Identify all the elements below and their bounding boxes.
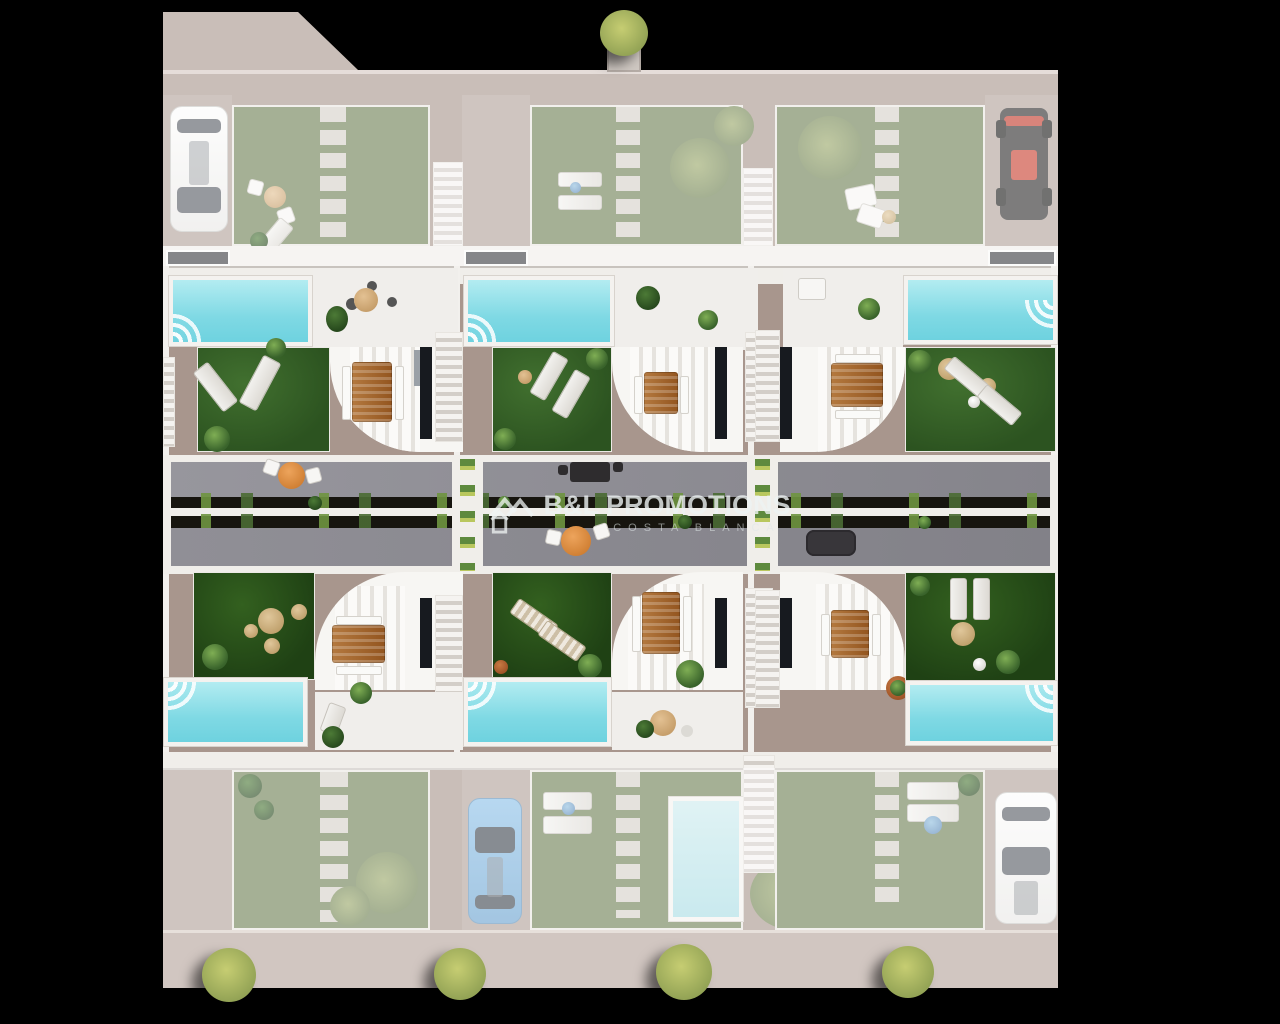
terrace-plant bbox=[350, 682, 372, 704]
terrace-plant bbox=[636, 286, 660, 310]
car-rear-window bbox=[177, 119, 221, 133]
driveway-bottom-left bbox=[163, 770, 232, 930]
ps bbox=[1007, 685, 1053, 725]
pouf bbox=[264, 638, 280, 654]
street-access-stairs bbox=[163, 357, 175, 447]
side-stairs bbox=[743, 168, 773, 246]
villa5-lower-terrace bbox=[612, 692, 743, 750]
garden-round-table bbox=[264, 186, 286, 208]
dining-chairs bbox=[634, 376, 643, 414]
brand-subtitle: COSTA BLANCA bbox=[553, 522, 781, 534]
shrub bbox=[908, 350, 932, 374]
sun-lounger bbox=[543, 816, 592, 834]
blue-car bbox=[468, 798, 522, 924]
ps bbox=[468, 302, 514, 342]
villa2-dining-table bbox=[644, 372, 678, 414]
sidewalk-tree bbox=[202, 948, 256, 1002]
palm-tree bbox=[670, 138, 730, 198]
pw bbox=[673, 801, 739, 917]
villa3-dining-table bbox=[831, 363, 883, 407]
white-ball bbox=[973, 658, 986, 671]
street-orange-table bbox=[278, 462, 305, 489]
pouf bbox=[882, 210, 896, 224]
dining-chairs bbox=[336, 616, 382, 625]
hood bbox=[1011, 150, 1037, 180]
shrub bbox=[996, 650, 1020, 674]
shrub bbox=[254, 800, 274, 820]
stepping-stones bbox=[616, 772, 640, 918]
ps bbox=[1007, 300, 1053, 340]
shrub bbox=[266, 338, 286, 358]
terrace-sofa bbox=[798, 278, 826, 300]
sun-lounger bbox=[950, 578, 967, 620]
wh bbox=[996, 120, 1006, 138]
dining-chairs bbox=[395, 366, 404, 420]
dining-chairs bbox=[872, 614, 881, 656]
villa5-pool bbox=[463, 677, 612, 747]
villa1-stairs bbox=[435, 332, 463, 442]
terrace-plant bbox=[322, 726, 344, 748]
street-shrub bbox=[918, 516, 931, 529]
sidewalk-tree bbox=[656, 944, 712, 1000]
villa3-stairs bbox=[755, 330, 780, 442]
sidewalk-tree bbox=[882, 946, 934, 998]
street-tree bbox=[600, 10, 648, 56]
dining-chairs bbox=[336, 666, 382, 675]
street-shrub bbox=[308, 496, 322, 510]
terrace-round-table bbox=[354, 288, 378, 312]
villa2-entry-terrace bbox=[615, 268, 758, 350]
villa6-dining-table bbox=[831, 610, 869, 658]
pouf bbox=[291, 604, 307, 620]
dining-chairs bbox=[632, 596, 641, 652]
dining-chairs bbox=[835, 354, 881, 363]
sun-lounger bbox=[907, 782, 959, 800]
garage-door bbox=[464, 250, 528, 266]
plant-pot bbox=[494, 660, 508, 674]
shrub bbox=[958, 774, 980, 796]
white-car-bottom bbox=[995, 792, 1057, 924]
villa1-kitchen bbox=[420, 347, 432, 439]
villa6-kitchen bbox=[780, 598, 792, 668]
villa3-kitchen bbox=[780, 347, 792, 439]
villa6-stairs bbox=[755, 590, 780, 708]
element bbox=[491, 500, 532, 533]
ps bbox=[173, 302, 219, 342]
villa4-pool bbox=[163, 677, 308, 747]
shrub bbox=[238, 774, 262, 798]
wh bbox=[1042, 120, 1052, 138]
bar bbox=[1004, 116, 1044, 126]
sun-lounger bbox=[973, 578, 990, 620]
aerial-site-plan-render: B&L PROMOTIONS COSTA BLANCA bbox=[0, 0, 1280, 1024]
terrace-plant bbox=[698, 310, 718, 330]
villa6-pool bbox=[905, 680, 1058, 746]
street-dark-chair bbox=[613, 462, 623, 472]
palm-tree bbox=[330, 886, 370, 926]
lawn-side-table bbox=[518, 370, 532, 384]
kitchen-counter bbox=[414, 350, 420, 386]
palm-tree bbox=[798, 116, 862, 180]
villa1-pool bbox=[168, 275, 313, 347]
palm-tree bbox=[714, 106, 754, 146]
car-windshield bbox=[1002, 847, 1050, 875]
garden-spa bbox=[562, 802, 575, 815]
car-windshield bbox=[177, 187, 221, 213]
shrub bbox=[578, 654, 602, 678]
shrub bbox=[910, 576, 930, 596]
car-windshield bbox=[475, 827, 515, 853]
street-dark-chair bbox=[558, 465, 568, 475]
street-dark-table bbox=[570, 462, 610, 482]
planter-plant bbox=[890, 680, 906, 696]
terrace-plant bbox=[676, 660, 704, 688]
brand-name: B&L PROMOTIONS bbox=[543, 490, 790, 521]
pouf bbox=[258, 608, 284, 634]
shrub bbox=[586, 348, 608, 370]
side-stairs bbox=[743, 755, 775, 873]
stepping-stones bbox=[320, 107, 346, 244]
terrace-plant bbox=[858, 298, 880, 320]
parked-dark-car bbox=[806, 530, 856, 556]
white-car-top bbox=[170, 106, 228, 232]
ps bbox=[468, 682, 514, 722]
terrace-plant bbox=[326, 306, 348, 332]
villa2-pool bbox=[463, 275, 615, 347]
car-rear-window bbox=[475, 895, 515, 909]
car-roof bbox=[189, 141, 209, 185]
sun-lounger bbox=[558, 195, 602, 210]
divider-planters bbox=[460, 459, 475, 571]
villa5-dining-table bbox=[642, 592, 680, 654]
garden-spa bbox=[924, 816, 942, 834]
car-roof bbox=[487, 857, 503, 897]
dining-chairs bbox=[683, 596, 692, 652]
sidewalk-tree bbox=[434, 948, 486, 1000]
wh bbox=[996, 188, 1006, 206]
garden-pool bbox=[668, 796, 744, 922]
terrace-plant bbox=[636, 720, 654, 738]
villa4-dining-table bbox=[332, 625, 385, 663]
villa5-kitchen bbox=[715, 598, 727, 668]
ps bbox=[168, 682, 214, 722]
twin-gable-house-logo-icon bbox=[489, 487, 533, 537]
villa2-kitchen bbox=[715, 347, 727, 439]
car-roof bbox=[1014, 881, 1038, 915]
watermark: B&L PROMOTIONS COSTA BLANCA bbox=[489, 487, 790, 537]
dining-chairs bbox=[821, 614, 830, 656]
villa1-dining-table bbox=[352, 362, 392, 422]
terrace-round-table bbox=[650, 710, 676, 736]
terrace-band-bottom bbox=[163, 752, 1058, 770]
dining-chairs bbox=[835, 410, 881, 419]
garden-spa bbox=[570, 182, 581, 193]
pouf bbox=[951, 622, 975, 646]
red-buggy bbox=[1000, 108, 1048, 220]
dining-chairs bbox=[680, 376, 689, 414]
wh bbox=[1042, 188, 1052, 206]
villa3-pool bbox=[903, 275, 1058, 345]
watermark-text: B&L PROMOTIONS COSTA BLANCA bbox=[543, 490, 790, 534]
shrub bbox=[494, 428, 516, 450]
garage-door bbox=[988, 250, 1056, 266]
stepping-stones bbox=[875, 772, 899, 910]
garage-door bbox=[166, 250, 230, 266]
driveway-top-middle bbox=[462, 95, 530, 246]
dining-chairs bbox=[342, 366, 351, 420]
stepping-stones bbox=[616, 107, 640, 244]
shrub bbox=[204, 426, 230, 452]
element bbox=[493, 518, 505, 532]
car-rear-window bbox=[1002, 807, 1050, 821]
shrub bbox=[202, 644, 228, 670]
villa4-kitchen bbox=[420, 598, 432, 668]
side-stairs bbox=[433, 162, 463, 246]
pouf bbox=[244, 624, 258, 638]
